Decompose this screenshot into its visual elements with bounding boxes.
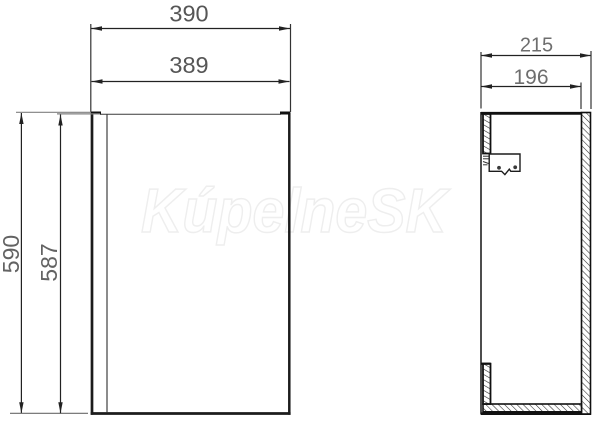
svg-text:215: 215 — [520, 34, 553, 56]
svg-text:590: 590 — [0, 235, 24, 273]
svg-text:KúpelneSK: KúpelneSK — [141, 177, 451, 246]
svg-text:389: 389 — [169, 52, 208, 78]
svg-text:196: 196 — [513, 66, 548, 89]
svg-text:587: 587 — [36, 243, 62, 281]
svg-text:390: 390 — [169, 1, 208, 27]
